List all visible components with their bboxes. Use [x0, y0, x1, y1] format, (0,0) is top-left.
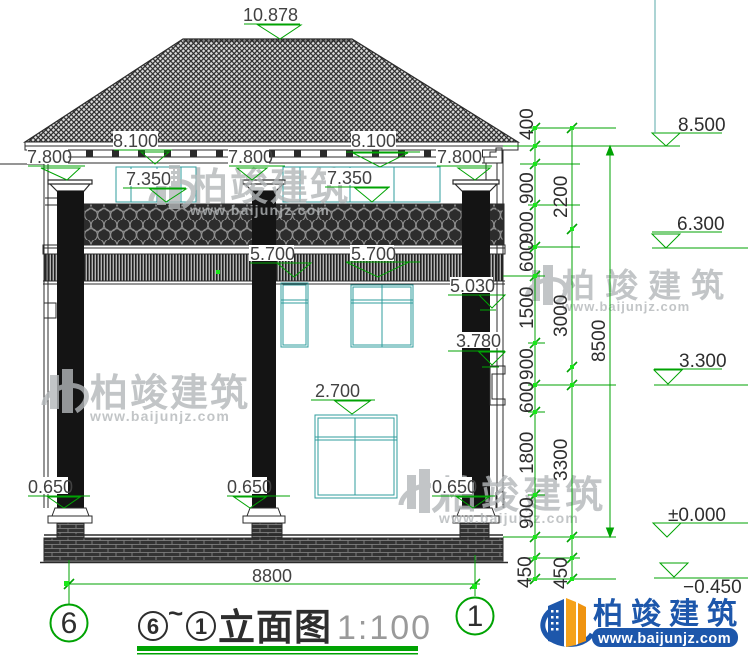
svg-text:6: 6 — [61, 607, 78, 640]
svg-text:2200: 2200 — [551, 176, 572, 218]
svg-text:8.100: 8.100 — [113, 131, 158, 151]
svg-text:1: 1 — [467, 600, 484, 633]
svg-text:7.800: 7.800 — [27, 147, 72, 167]
svg-text:0.650: 0.650 — [432, 477, 477, 497]
svg-text:0.650: 0.650 — [227, 477, 272, 497]
svg-text:3000: 3000 — [551, 295, 572, 337]
svg-text:900: 900 — [517, 497, 538, 529]
svg-text:6: 6 — [147, 614, 159, 639]
svg-text:~: ~ — [168, 598, 183, 628]
svg-text:1500: 1500 — [517, 287, 538, 329]
svg-text:600: 600 — [517, 381, 538, 413]
svg-text:900: 900 — [517, 211, 538, 243]
svg-text:2.700: 2.700 — [315, 381, 360, 401]
svg-text:7.800: 7.800 — [228, 147, 273, 167]
svg-text:400: 400 — [517, 108, 538, 140]
svg-text:900: 900 — [517, 172, 538, 204]
svg-text:柏竣建筑: 柏竣建筑 — [593, 597, 745, 631]
svg-text:7.350: 7.350 — [327, 168, 372, 188]
svg-text:3300: 3300 — [551, 439, 572, 481]
svg-text:5.030: 5.030 — [450, 276, 495, 296]
svg-text:8500: 8500 — [589, 320, 610, 362]
svg-text:600: 600 — [517, 240, 538, 272]
svg-text:5.700: 5.700 — [250, 244, 295, 264]
svg-text:0.650: 0.650 — [28, 477, 73, 497]
svg-text:www.baijunjz.com: www.baijunjz.com — [89, 408, 230, 424]
svg-text:450: 450 — [551, 557, 572, 589]
svg-text:8.100: 8.100 — [351, 131, 396, 151]
svg-text:www.baijunjz.com: www.baijunjz.com — [561, 299, 690, 314]
svg-text:www.baijunjz.com: www.baijunjz.com — [438, 510, 579, 526]
svg-text:1: 1 — [195, 614, 207, 639]
svg-text:1800: 1800 — [517, 432, 538, 474]
svg-text:−0.450: −0.450 — [683, 577, 742, 598]
svg-text:7.800: 7.800 — [437, 147, 482, 167]
svg-text:5.700: 5.700 — [351, 244, 396, 264]
svg-text:10.878: 10.878 — [243, 5, 298, 25]
svg-text:8800: 8800 — [252, 566, 292, 586]
svg-text:900: 900 — [517, 348, 538, 380]
svg-text:7.350: 7.350 — [126, 169, 171, 189]
svg-text:1:100: 1:100 — [337, 609, 432, 647]
svg-text:立面图: 立面图 — [218, 607, 332, 648]
svg-text:www.baijunjz.com: www.baijunjz.com — [597, 631, 731, 647]
svg-text:3.780: 3.780 — [456, 331, 501, 351]
svg-text:450: 450 — [515, 556, 536, 588]
svg-text:www.baijunjz.com: www.baijunjz.com — [189, 202, 330, 218]
